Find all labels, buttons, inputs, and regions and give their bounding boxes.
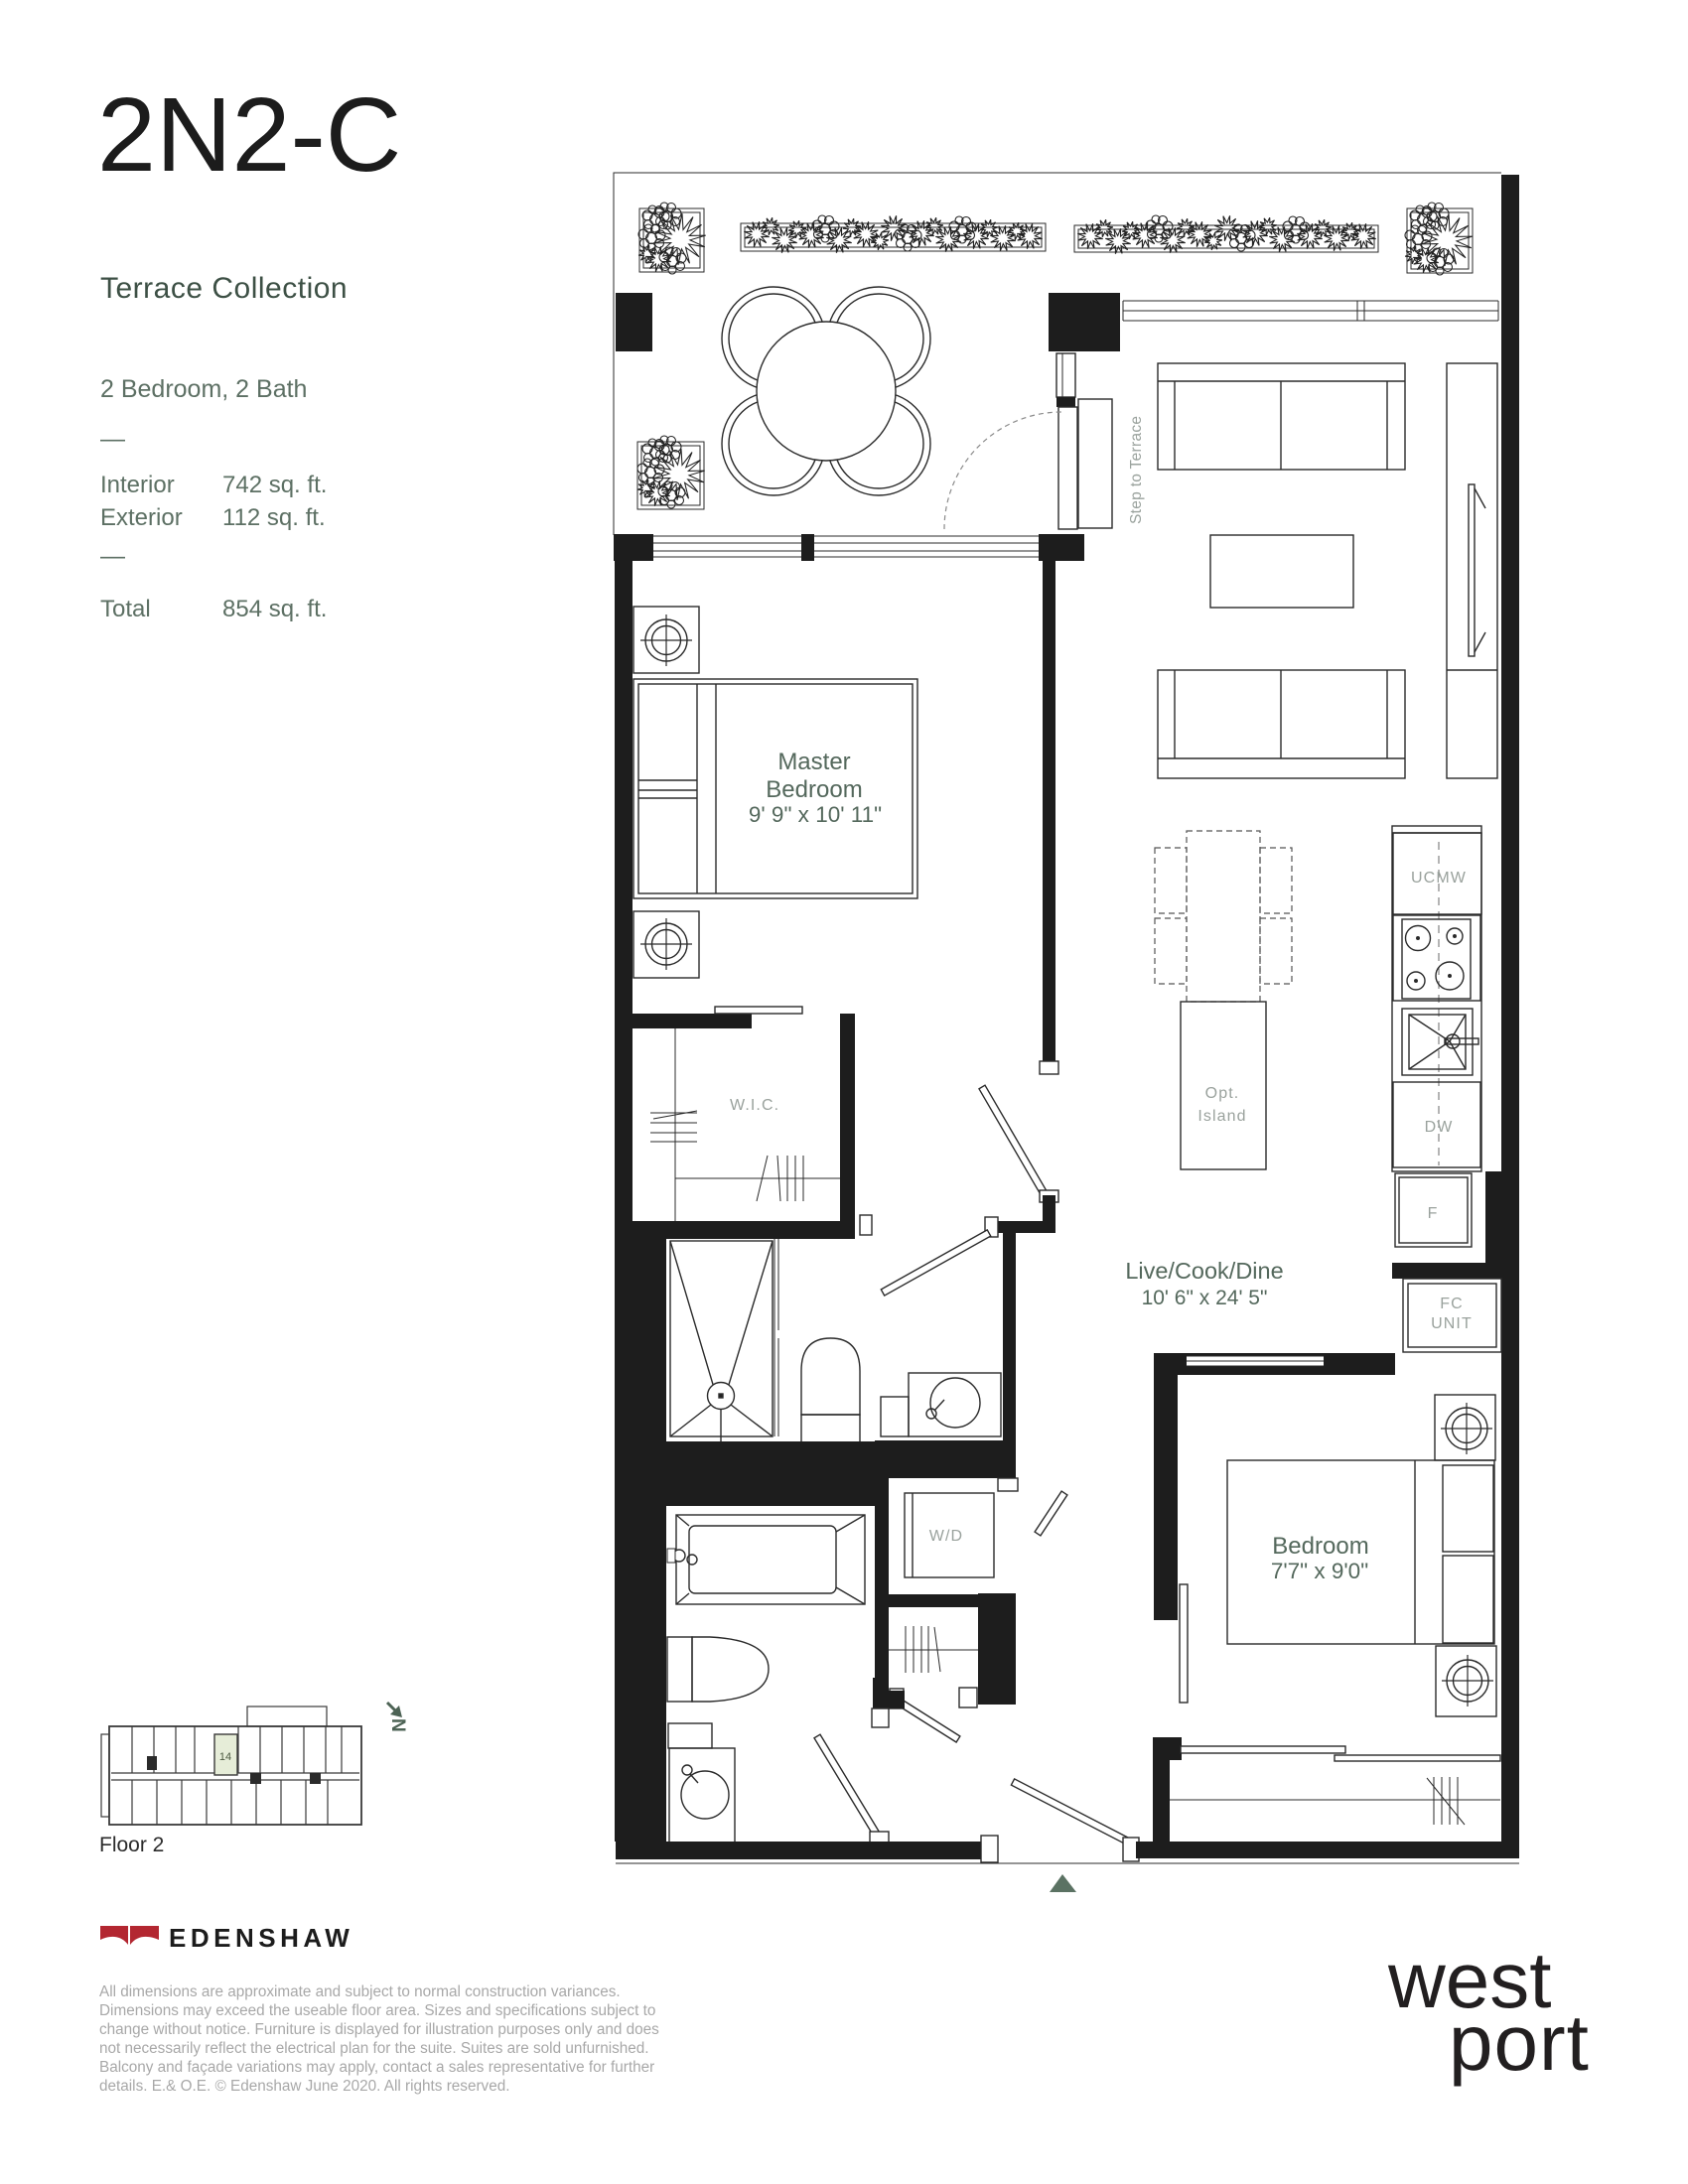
svg-text:7'7" x 9'0": 7'7" x 9'0" xyxy=(1271,1559,1368,1583)
svg-text:2N2-C: 2N2-C xyxy=(97,76,401,194)
svg-text:Terrace Collection: Terrace Collection xyxy=(100,272,348,305)
svg-text:change without notice. Furnitu: change without notice. Furniture is disp… xyxy=(99,2021,659,2038)
svg-text:Floor 2: Floor 2 xyxy=(99,1834,164,1856)
svg-text:not necessarily reflect the el: not necessarily reflect the electrical p… xyxy=(99,2040,649,2057)
svg-text:Opt.: Opt. xyxy=(1205,1085,1240,1102)
svg-text:DW: DW xyxy=(1425,1119,1454,1136)
svg-text:10' 6" x 24' 5": 10' 6" x 24' 5" xyxy=(1142,1287,1268,1309)
svg-text:9' 9" x 10' 11": 9' 9" x 10' 11" xyxy=(749,802,882,827)
svg-text:Exterior: Exterior xyxy=(100,504,183,531)
svg-text:Bedroom: Bedroom xyxy=(1272,1533,1368,1560)
svg-text:port: port xyxy=(1449,1998,1590,2087)
svg-text:W.I.C.: W.I.C. xyxy=(730,1097,779,1114)
svg-text:742 sq. ft.: 742 sq. ft. xyxy=(222,472,327,498)
svg-text:N: N xyxy=(387,1718,408,1732)
svg-text:Balcony and façade variations: Balcony and façade variations may apply,… xyxy=(99,2059,654,2076)
svg-text:W/D: W/D xyxy=(929,1528,963,1545)
svg-text:FC: FC xyxy=(1440,1296,1464,1312)
svg-text:Interior: Interior xyxy=(100,472,175,498)
svg-text:UNIT: UNIT xyxy=(1431,1315,1473,1332)
svg-text:Step to Terrace: Step to Terrace xyxy=(1128,416,1145,524)
svg-text:112 sq. ft.: 112 sq. ft. xyxy=(222,504,326,531)
svg-text:UCMW: UCMW xyxy=(1411,870,1467,887)
svg-text:Bedroom: Bedroom xyxy=(766,776,862,803)
svg-text:Total: Total xyxy=(100,596,151,622)
svg-text:F: F xyxy=(1428,1205,1439,1222)
svg-text:14: 14 xyxy=(219,1751,231,1763)
svg-text:EDENSHAW: EDENSHAW xyxy=(169,1923,353,1953)
svg-text:details. E.& O.E. © Edenshaw J: details. E.& O.E. © Edenshaw June 2020. … xyxy=(99,2078,509,2095)
svg-text:—: — xyxy=(100,542,125,570)
svg-text:Dimensions may exceed the usea: Dimensions may exceed the useable floor … xyxy=(99,2002,655,2019)
svg-text:—: — xyxy=(100,425,125,453)
svg-text:Master: Master xyxy=(777,749,850,775)
svg-text:All dimensions are approximate: All dimensions are approximate and subje… xyxy=(99,1983,621,2000)
svg-text:Live/Cook/Dine: Live/Cook/Dine xyxy=(1125,1258,1283,1284)
svg-text:2 Bedroom, 2 Bath: 2 Bedroom, 2 Bath xyxy=(100,375,307,403)
svg-text:854 sq. ft.: 854 sq. ft. xyxy=(222,596,327,622)
svg-text:Island: Island xyxy=(1197,1108,1246,1125)
